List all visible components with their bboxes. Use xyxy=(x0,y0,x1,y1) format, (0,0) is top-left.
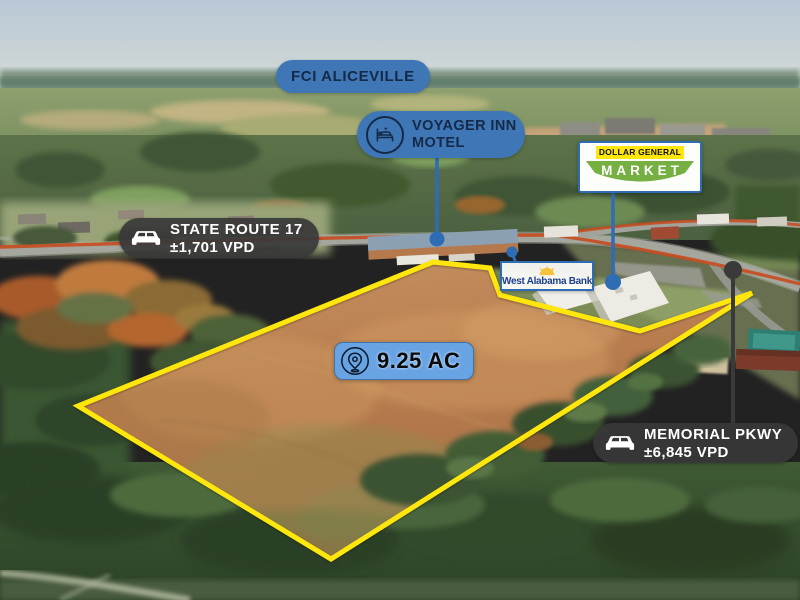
car-icon xyxy=(604,433,636,453)
fci-aliceville-badge: FCI ALICEVILLE xyxy=(276,60,430,93)
brick-building xyxy=(736,349,800,371)
west-alabama-bank-label: West Alabama Bank xyxy=(502,276,592,287)
acreage-badge: 9.25 AC xyxy=(334,342,474,380)
bank-dot xyxy=(507,247,518,258)
memorial-pkwy-traffic-count: ±6,845 VPD xyxy=(644,444,782,461)
west-alabama-bank-sign: West Alabama Bank xyxy=(500,261,594,291)
gas-station-building xyxy=(544,225,578,237)
memorial-pkwy-label: MEMORIAL PKWY xyxy=(644,426,782,444)
memorial-pkwy-badge: MEMORIAL PKWY ±6,845 VPD xyxy=(593,423,798,463)
dollar-general-market-band: MARKET ™ xyxy=(584,160,696,190)
state-route-17-badge: STATE ROUTE 17 ±1,701 VPD xyxy=(119,218,319,258)
state-route-17-label: STATE ROUTE 17 xyxy=(170,221,303,239)
acreage-label: 9.25 AC xyxy=(377,348,460,374)
location-pin-icon xyxy=(340,346,370,376)
dollar-general-dot xyxy=(605,274,621,290)
memorial-dot xyxy=(724,261,742,279)
white-house xyxy=(697,213,729,224)
trademark-symbol: ™ xyxy=(690,169,695,175)
voyager-inn-badge: VOYAGER INN MOTEL xyxy=(357,111,525,158)
sun-logo-icon xyxy=(534,266,560,276)
fci-aliceville-label: FCI ALICEVILLE xyxy=(291,68,415,85)
dollar-general-sign: DOLLAR GENERAL MARKET ™ xyxy=(578,141,702,193)
trailer-home xyxy=(757,216,787,226)
dollar-general-banner: DOLLAR GENERAL xyxy=(596,146,684,159)
car-icon xyxy=(130,228,162,248)
voyager-inn-label-line1: VOYAGER INN xyxy=(412,118,517,135)
bed-motel-icon xyxy=(366,116,404,154)
voyager-inn-label-line2: MOTEL xyxy=(412,135,517,152)
state-route-17-traffic-count: ±1,701 VPD xyxy=(170,239,303,256)
voyager-dot xyxy=(430,232,445,247)
red-roof-house xyxy=(651,226,680,239)
dollar-general-market-label: MARKET xyxy=(584,163,696,178)
aerial-property-photo: FCI ALICEVILLE VOYAGER INN MOTEL DOLLAR … xyxy=(0,0,800,600)
